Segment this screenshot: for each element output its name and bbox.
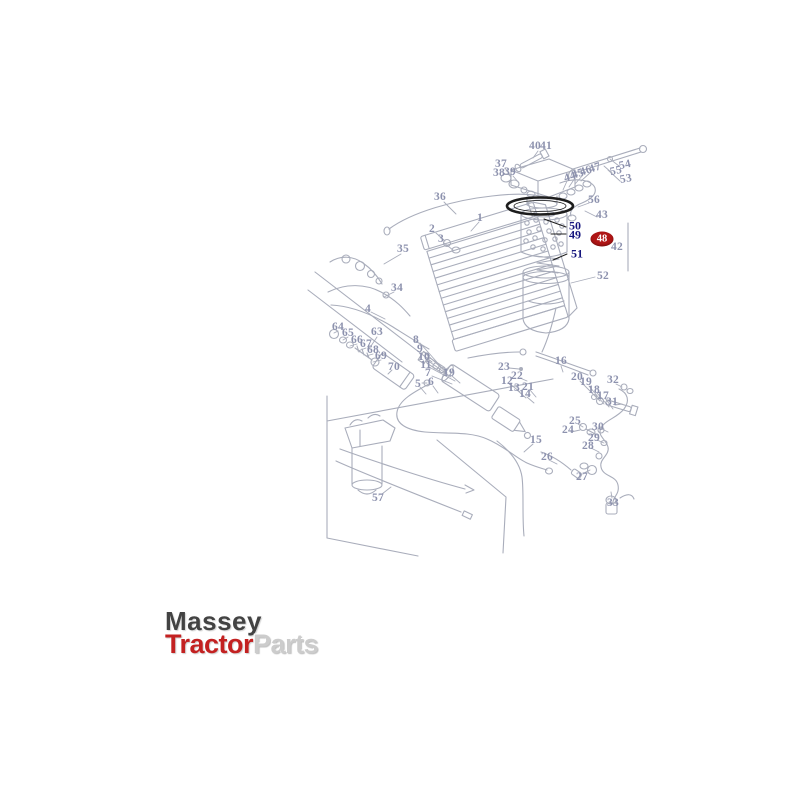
part-label-57: 57 [372,492,384,504]
part-label-56: 56 [588,194,600,206]
part-label-36: 36 [434,191,446,203]
part-label-32: 32 [607,374,619,386]
part-label-emphasis-49: 49 [569,228,581,243]
part-label-11: 11 [420,359,431,371]
part-label-41: 41 [540,140,552,152]
part-label-16: 16 [555,355,567,367]
part-label-22: 22 [511,370,523,382]
part-label-52: 52 [597,270,609,282]
part-label-39: 39 [504,166,516,178]
part-label-3: 3 [438,233,444,245]
part-label-15: 15 [530,434,542,446]
part-label-33: 33 [607,497,619,509]
part-label-63: 63 [371,326,383,338]
part-label-23: 23 [498,361,510,373]
product-diagram-image: 1234567891011121314151617181919202122232… [0,0,800,800]
part-label-25: 25 [569,415,581,427]
part-label-29: 29 [588,432,600,444]
part-label-70: 70 [388,361,400,373]
brand-logo: Massey TractorParts [165,608,318,658]
part-label-20: 20 [571,371,583,383]
brand-tractorparts-text: TractorParts [165,631,318,658]
part-label-1: 1 [477,212,483,224]
part-label-35: 35 [397,243,409,255]
part-label-55: 55 [609,164,623,178]
part-label-43: 43 [596,209,608,221]
part-label-2: 2 [429,223,435,235]
part-label-30: 30 [592,421,604,433]
part-label-5: 5 [415,378,421,390]
part-label-42: 42 [611,241,623,253]
brand-tractor-text: Tractor [165,629,253,659]
highlighted-part-badge: 48 [591,232,614,247]
part-label-27: 27 [576,471,588,483]
part-label-21: 21 [522,381,534,393]
brand-parts-text: Parts [253,629,318,659]
part-label-19: 19 [443,367,455,379]
part-label-emphasis-51: 51 [571,247,583,262]
part-label-4: 4 [365,303,371,315]
parts-diagram-drawing [0,0,800,800]
part-label-26: 26 [541,451,553,463]
part-label-69: 69 [375,350,387,362]
part-label-34: 34 [391,282,403,294]
part-label-31: 31 [606,396,618,408]
